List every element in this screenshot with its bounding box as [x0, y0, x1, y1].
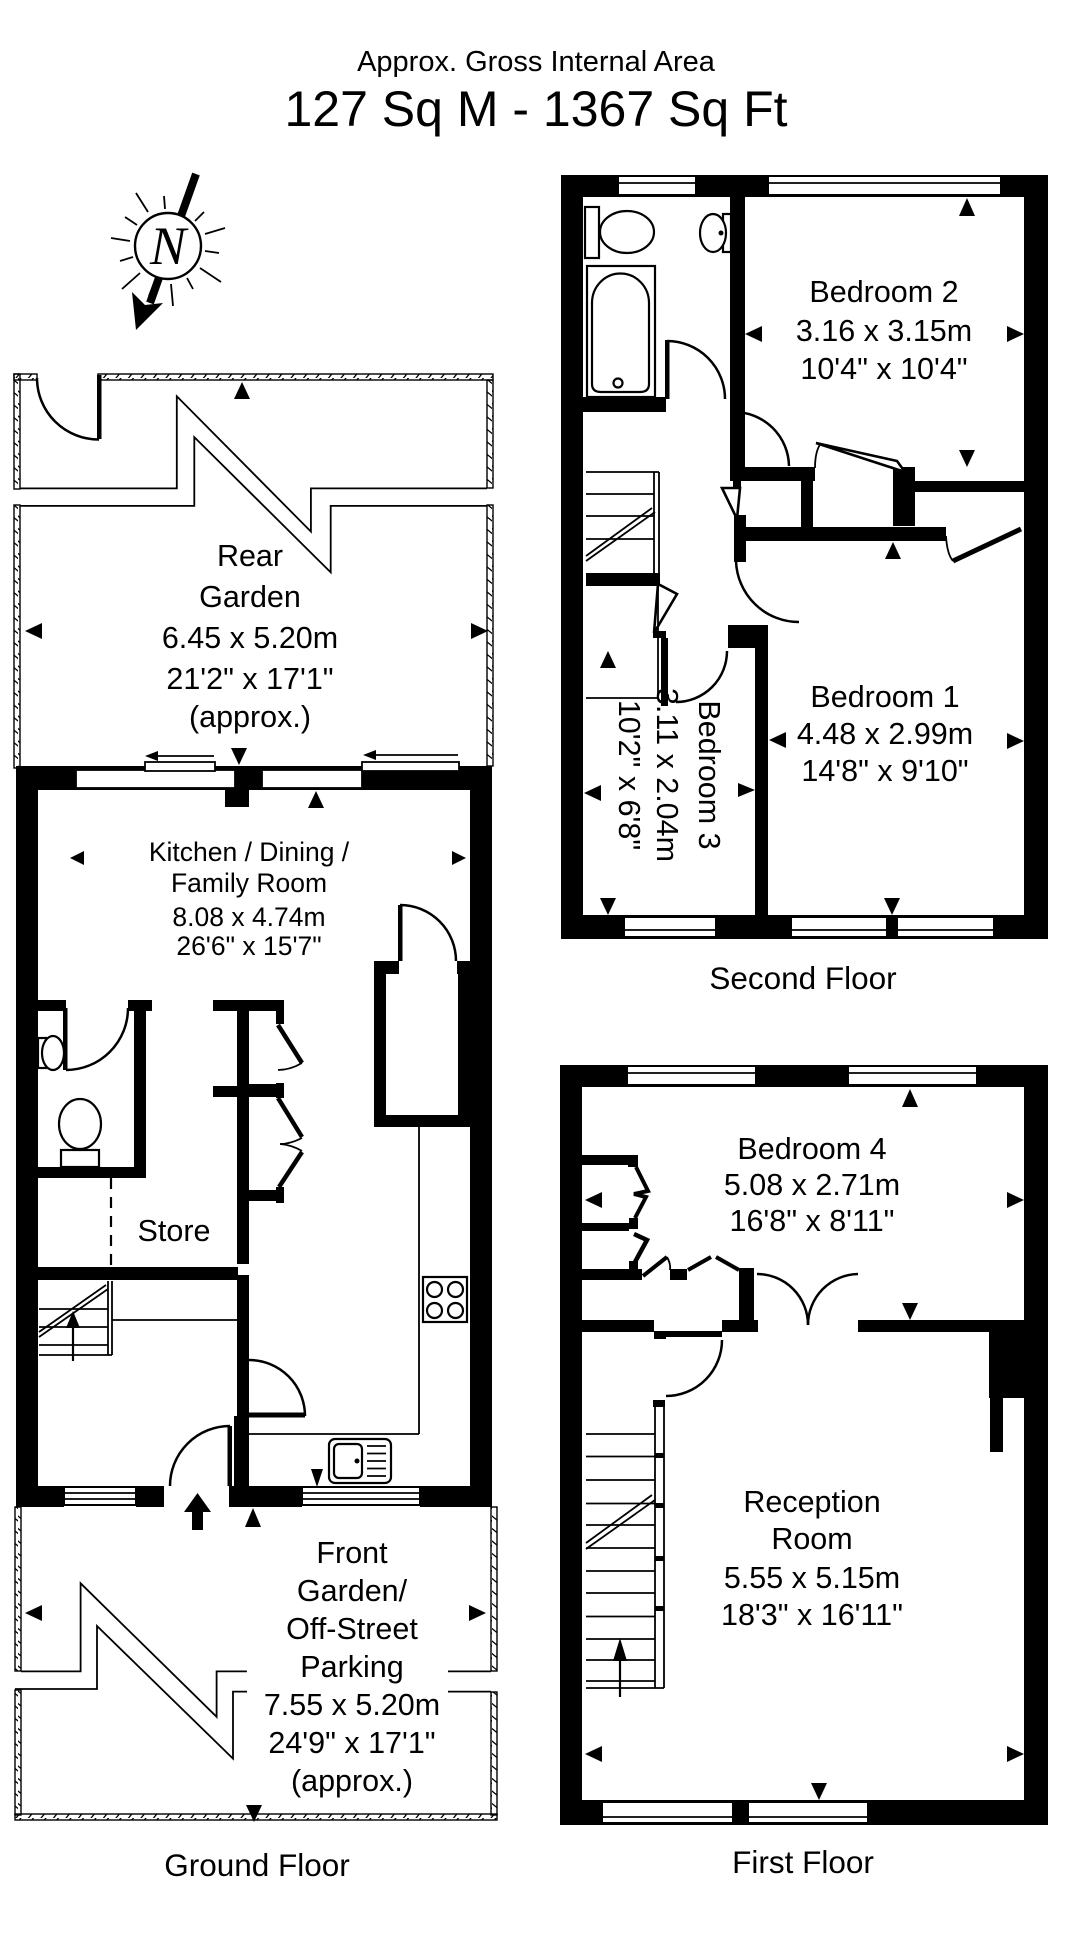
svg-text:3.16 x 3.15m: 3.16 x 3.15m [796, 314, 972, 348]
svg-text:Rear: Rear [217, 539, 283, 573]
svg-text:Front: Front [316, 1536, 388, 1570]
svg-text:Garden/: Garden/ [297, 1574, 408, 1608]
svg-text:16'8" x 8'11": 16'8" x 8'11" [729, 1204, 894, 1238]
svg-text:Bedroom 2: Bedroom 2 [809, 275, 958, 309]
svg-text:Off-Street: Off-Street [286, 1612, 418, 1646]
svg-text:14'8" x 9'10": 14'8" x 9'10" [801, 754, 968, 788]
svg-text:Store: Store [138, 1214, 211, 1248]
svg-text:10'2" x 6'8": 10'2" x 6'8" [612, 700, 646, 850]
svg-text:5.55 x 5.15m: 5.55 x 5.15m [724, 1561, 900, 1595]
svg-text:Approx. Gross Internal Area: Approx. Gross Internal Area [357, 46, 716, 78]
svg-text:Reception: Reception [743, 1485, 880, 1519]
svg-text:5.08 x 2.71m: 5.08 x 2.71m [724, 1168, 900, 1202]
svg-text:Bedroom 1: Bedroom 1 [810, 680, 959, 714]
svg-text:24'9" x 17'1": 24'9" x 17'1" [268, 1726, 435, 1760]
svg-text:7.55 x 5.20m: 7.55 x 5.20m [264, 1688, 440, 1722]
svg-text:First Floor: First Floor [732, 1844, 874, 1880]
svg-text:4.48 x 2.99m: 4.48 x 2.99m [797, 717, 973, 751]
svg-text:127 Sq M - 1367 Sq Ft: 127 Sq M - 1367 Sq Ft [284, 81, 787, 137]
svg-text:3.11 x 2.04m: 3.11 x 2.04m [650, 688, 684, 862]
svg-text:Parking: Parking [300, 1650, 403, 1684]
svg-text:N: N [149, 216, 189, 276]
svg-text:Bedroom 3: Bedroom 3 [692, 700, 726, 849]
svg-text:8.08 x 4.74m: 8.08 x 4.74m [172, 902, 325, 932]
svg-text:Room: Room [771, 1522, 852, 1556]
svg-text:Garden: Garden [199, 580, 301, 614]
svg-text:26'6" x 15'7": 26'6" x 15'7" [176, 931, 321, 961]
svg-text:Ground Floor: Ground Floor [164, 1847, 350, 1883]
svg-text:(approx.): (approx.) [189, 700, 311, 734]
svg-text:Family Room: Family Room [171, 868, 327, 898]
svg-text:6.45 x 5.20m: 6.45 x 5.20m [162, 621, 338, 655]
svg-text:21'2" x 17'1": 21'2" x 17'1" [166, 662, 333, 696]
svg-text:Kitchen / Dining /: Kitchen / Dining / [149, 837, 350, 867]
svg-text:Bedroom 4: Bedroom 4 [737, 1132, 886, 1166]
svg-text:18'3" x 16'11": 18'3" x 16'11" [721, 1598, 903, 1632]
svg-text:Second Floor: Second Floor [709, 960, 896, 996]
svg-text:(approx.): (approx.) [291, 1764, 413, 1798]
svg-text:10'4" x 10'4": 10'4" x 10'4" [800, 352, 967, 386]
